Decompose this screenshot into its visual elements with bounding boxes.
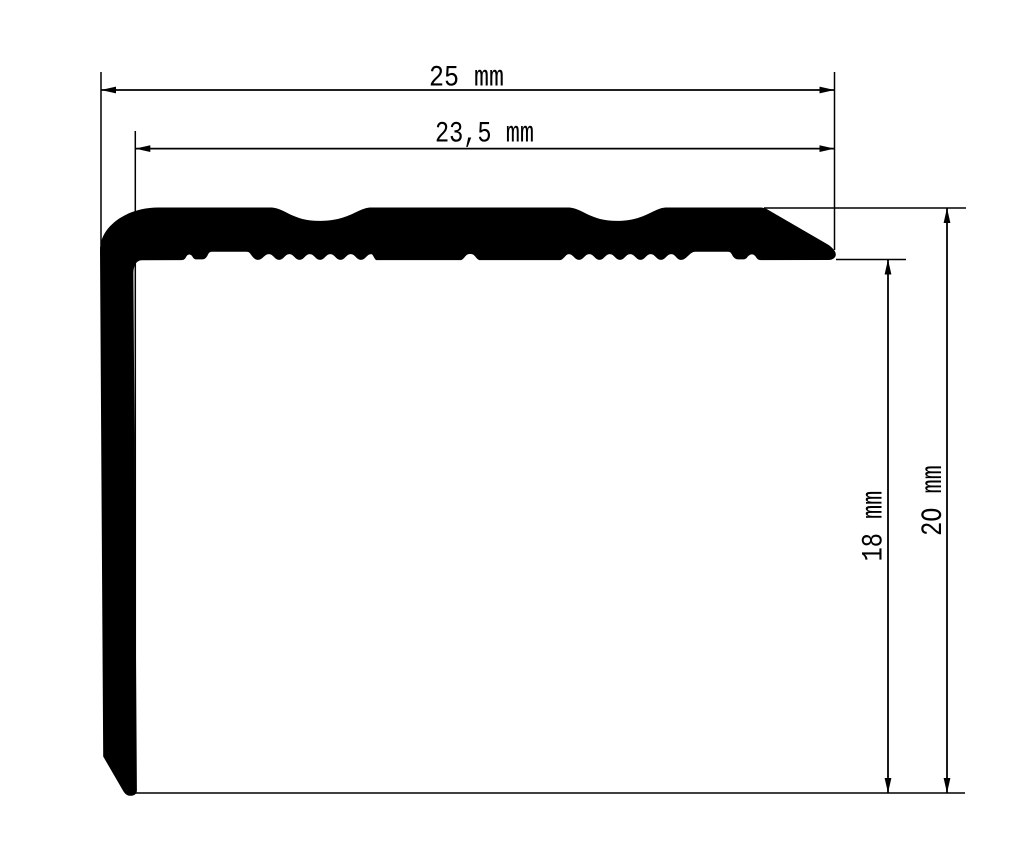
svg-text:23,5 mm: 23,5 mm — [435, 118, 534, 152]
svg-text:18 mm: 18 mm — [858, 491, 892, 562]
svg-text:25 mm: 25 mm — [429, 62, 504, 96]
svg-text:2O mm: 2O mm — [917, 465, 951, 536]
